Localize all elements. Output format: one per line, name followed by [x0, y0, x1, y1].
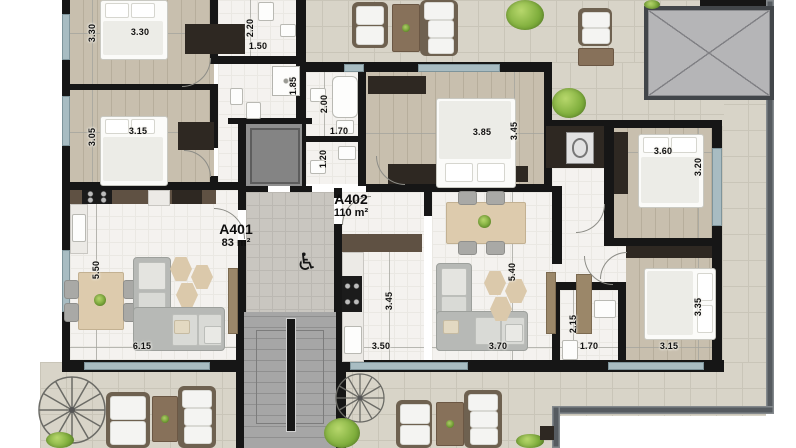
chair [458, 191, 477, 205]
sink [230, 88, 243, 105]
outdoor-table [152, 396, 178, 442]
outdoor-table [392, 4, 420, 52]
dim-label: 3.30 [131, 27, 149, 37]
wall [544, 62, 552, 128]
toilet [562, 340, 578, 360]
outdoor-sofa [178, 386, 216, 448]
outside-cutout [558, 416, 796, 448]
stove [342, 276, 362, 312]
chair [458, 241, 477, 255]
toilet [258, 2, 274, 21]
sofa-cushion [356, 26, 384, 45]
outdoor-sofa [578, 8, 612, 46]
dim-label: 3.70 [489, 341, 507, 351]
dim-label: 3.05 [87, 128, 97, 146]
wall [290, 186, 312, 192]
dim-label: 3.30 [87, 24, 97, 42]
dim-label: 3.45 [509, 122, 519, 140]
wall [306, 136, 358, 142]
plant [161, 415, 169, 423]
dim-label: 3.35 [693, 298, 703, 316]
bed [644, 268, 716, 340]
washing-machine [566, 132, 594, 164]
dim-label: 3.45 [384, 292, 394, 310]
nightstand [422, 166, 434, 182]
sofa-cushion [110, 396, 146, 420]
unit-label-a402: A402 110 m² [320, 192, 382, 219]
tv-stand [546, 272, 556, 334]
wall [618, 290, 626, 362]
outdoor-table [436, 402, 464, 446]
dim-label: 3.60 [654, 146, 672, 156]
unit-label-a401: A401 83 m² [205, 222, 267, 249]
sofa-cushion [582, 12, 610, 28]
pillow [697, 273, 713, 301]
plant [478, 215, 491, 228]
pillow [131, 3, 155, 18]
chair [486, 241, 505, 255]
sink [280, 24, 296, 37]
throw-pillow [443, 320, 459, 334]
dim-label: 1.50 [249, 41, 267, 51]
blanket [103, 137, 163, 181]
throw-pillow [174, 320, 190, 334]
wall [334, 224, 342, 314]
planter-box [540, 426, 554, 440]
sofa-cushion [184, 408, 212, 426]
dim-label: 1.70 [330, 126, 348, 136]
wall [238, 192, 246, 210]
wardrobe [368, 76, 426, 94]
wall [358, 72, 366, 186]
bathtub [332, 76, 358, 118]
toilet [246, 102, 261, 119]
floor-plan: A401 83 m² A402 110 m² ♿ 3.30 3.30 2.20 … [0, 0, 796, 448]
stove [82, 190, 112, 204]
dim-label: 2.15 [568, 315, 578, 333]
sofa [436, 311, 528, 351]
window [62, 96, 70, 146]
pillow [105, 3, 129, 18]
dim-label: 5.50 [91, 261, 101, 279]
sink [72, 214, 86, 242]
sink [338, 146, 356, 160]
window [350, 362, 468, 370]
outdoor-armchair [396, 400, 432, 448]
sofa-cushion [582, 28, 610, 44]
plant [94, 294, 106, 306]
plant [324, 418, 360, 448]
plant [46, 432, 74, 448]
dim-label: 6.15 [133, 341, 151, 351]
sofa-cushion [428, 38, 454, 54]
chair [64, 280, 79, 299]
fridge [148, 190, 170, 206]
window [608, 362, 704, 370]
wardrobe [178, 122, 214, 150]
dim-label: 3.15 [660, 341, 678, 351]
wardrobe [185, 24, 245, 54]
dim-label: 2.20 [245, 19, 255, 37]
dim-label: 1.85 [288, 77, 298, 95]
hall-wardrobe [576, 274, 592, 334]
unit-area: 83 m² [205, 237, 267, 249]
dim-label: 2.00 [319, 95, 329, 113]
window [712, 148, 722, 226]
kitchen-a402-cabinets [342, 234, 422, 252]
parapet-bottom [552, 406, 774, 414]
window [418, 64, 500, 72]
throw-pillow [505, 324, 523, 342]
unit-id: A401 [205, 222, 267, 237]
pillow [105, 119, 129, 134]
sofa-cushion [356, 6, 384, 25]
wardrobe [614, 132, 628, 194]
dim-label: 1.20 [318, 150, 328, 168]
shaft-void [644, 6, 774, 100]
outdoor-table [578, 48, 614, 66]
sofa-cushion [400, 404, 430, 424]
wall [210, 176, 218, 190]
sink [344, 326, 362, 354]
sofa-cushion [468, 394, 498, 411]
sofa-cushion [428, 20, 454, 38]
wardrobe [626, 246, 712, 258]
pillow [477, 163, 505, 182]
plant [644, 0, 660, 9]
wall [296, 0, 306, 64]
sofa-cushion [400, 425, 430, 445]
wall [238, 118, 246, 192]
dim-label: 1.70 [580, 341, 598, 351]
blanket [641, 157, 699, 203]
window [344, 64, 364, 72]
accessible-icon: ♿ [296, 250, 318, 274]
elevator-car [250, 128, 300, 184]
plant [552, 88, 586, 118]
outdoor-sofa [464, 390, 502, 448]
plant [506, 0, 544, 30]
chair [486, 191, 505, 205]
dim-label: 3.20 [693, 158, 703, 176]
window [84, 362, 210, 370]
oven [172, 190, 202, 204]
pillow [445, 163, 473, 182]
wall [604, 126, 614, 242]
wall [238, 240, 246, 312]
sofa-cushion [424, 2, 454, 20]
sofa-cushion [441, 268, 467, 296]
sofa-cushion [138, 262, 166, 290]
nightstand [516, 166, 528, 182]
plant [402, 24, 410, 32]
wheel-ornament [334, 372, 386, 424]
outdoor-sofa [420, 0, 458, 56]
bed [436, 98, 516, 188]
dim-label: 3.15 [129, 126, 147, 136]
sofa-cushion [110, 421, 146, 445]
sofa-cushion [470, 428, 498, 445]
blanket [647, 271, 693, 335]
sink [594, 300, 616, 318]
sofa-cushion [470, 411, 498, 428]
dim-label: 3.85 [473, 127, 491, 137]
unit-area: 110 m² [320, 207, 382, 219]
dim-label: 5.40 [507, 263, 517, 281]
window [62, 14, 70, 60]
wall [604, 238, 722, 246]
tv-stand [228, 268, 238, 334]
chair [64, 303, 79, 322]
unit-id: A402 [320, 192, 382, 207]
sofa-cushion [182, 390, 212, 408]
sofa-cushion [184, 426, 212, 444]
dim-label: 3.50 [372, 341, 390, 351]
wall [552, 186, 562, 264]
pillow [671, 137, 697, 153]
throw-pillow [204, 326, 222, 344]
wall [210, 56, 306, 64]
outdoor-sofa [352, 2, 388, 48]
outdoor-sofa [106, 392, 150, 448]
stair-divider [286, 318, 296, 432]
plant [446, 420, 454, 428]
